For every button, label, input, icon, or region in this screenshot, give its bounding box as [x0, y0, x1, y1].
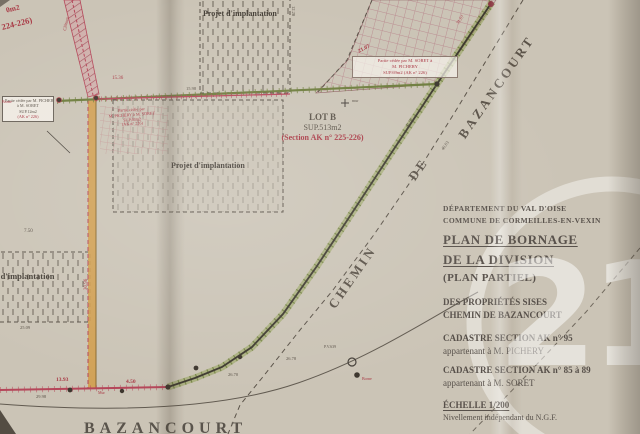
measure-12-20: 12.20	[291, 6, 296, 16]
measure-7-50: 7.50	[24, 229, 33, 235]
wall-strip	[88, 100, 96, 388]
plan-subtitle: (PLAN PARTIEL)	[443, 272, 536, 285]
measure-26-70: 26.70	[228, 372, 238, 377]
lot-b-name: LOT B	[280, 112, 365, 122]
cadastre-2-owner: appartenant à M. SORET	[443, 378, 534, 388]
prop-line-1: DES PROPRIÉTÉS SISES	[443, 297, 547, 307]
borne-label-1: Borne	[2, 100, 12, 105]
cession-strip	[64, 0, 99, 97]
measure-30-96: 30.96	[84, 279, 90, 290]
prop-line-2: CHEMIN DE BAZANCOURT	[443, 310, 562, 320]
cadastre-2: CADASTRE SECTION AK n° 85 à 89	[443, 365, 591, 375]
cession-left-l4: (AK n° 226)	[5, 114, 51, 119]
plan-title-2: DE LA DIVISION	[443, 253, 554, 268]
mur-label-1: Mur	[98, 391, 105, 396]
road-name-bottom: BAZANCOURT	[84, 420, 247, 434]
pv-label: P.V.639	[324, 345, 336, 350]
projet-label-3: Projet d'implantation	[0, 272, 54, 282]
cadastre-1: CADASTRE SECTION AK n° 95	[443, 333, 573, 343]
lot-b-area: SUP.513m2	[280, 123, 365, 132]
measure-29-98: 29.98	[36, 394, 46, 399]
lot-b-section: (Section AK n° 225-226)	[280, 133, 365, 142]
measure-4-50: 4.50	[126, 379, 136, 385]
cession-triangle-box: Partie cédée par M. SORET à M. PICHERY S…	[352, 56, 458, 78]
plan-title-1: PLAN DE BORNAGE	[443, 233, 578, 248]
measure-25-09: 25.09	[20, 325, 30, 330]
cession-wedge	[316, 0, 496, 93]
survey-plan-photo: 21 DÉPARTEMENT DU VAL D'OISE COMMUNE DE …	[0, 0, 640, 434]
measure-15-98: 15.98	[186, 86, 196, 91]
levelling-note: Nivellement indépendant du N.G.F.	[443, 413, 557, 422]
projet-label-1: Projet d'implantation	[203, 9, 277, 18]
title-commune: COMMUNE DE CORMEILLES-EN-VEXIN	[443, 217, 601, 226]
photo-corner	[0, 410, 16, 434]
mur-label-2: mur	[352, 99, 358, 104]
title-dept: DÉPARTEMENT DU VAL D'OISE	[443, 205, 567, 214]
measure-13-93: 13.93	[56, 377, 68, 383]
projet-label-2: Projet d'implantation	[171, 161, 245, 170]
cession-tri-l3: SUP.69m2 (AK n° 226)	[355, 70, 455, 76]
measure-26-78: 26.78	[286, 356, 296, 361]
borne-label-2: Borne	[362, 377, 372, 382]
measure-15-36: 15.36	[112, 76, 123, 82]
scale-label: ÉCHELLE 1/200	[443, 400, 509, 410]
cadastre-1-owner: appartenant à M. PICHERY	[443, 346, 544, 356]
